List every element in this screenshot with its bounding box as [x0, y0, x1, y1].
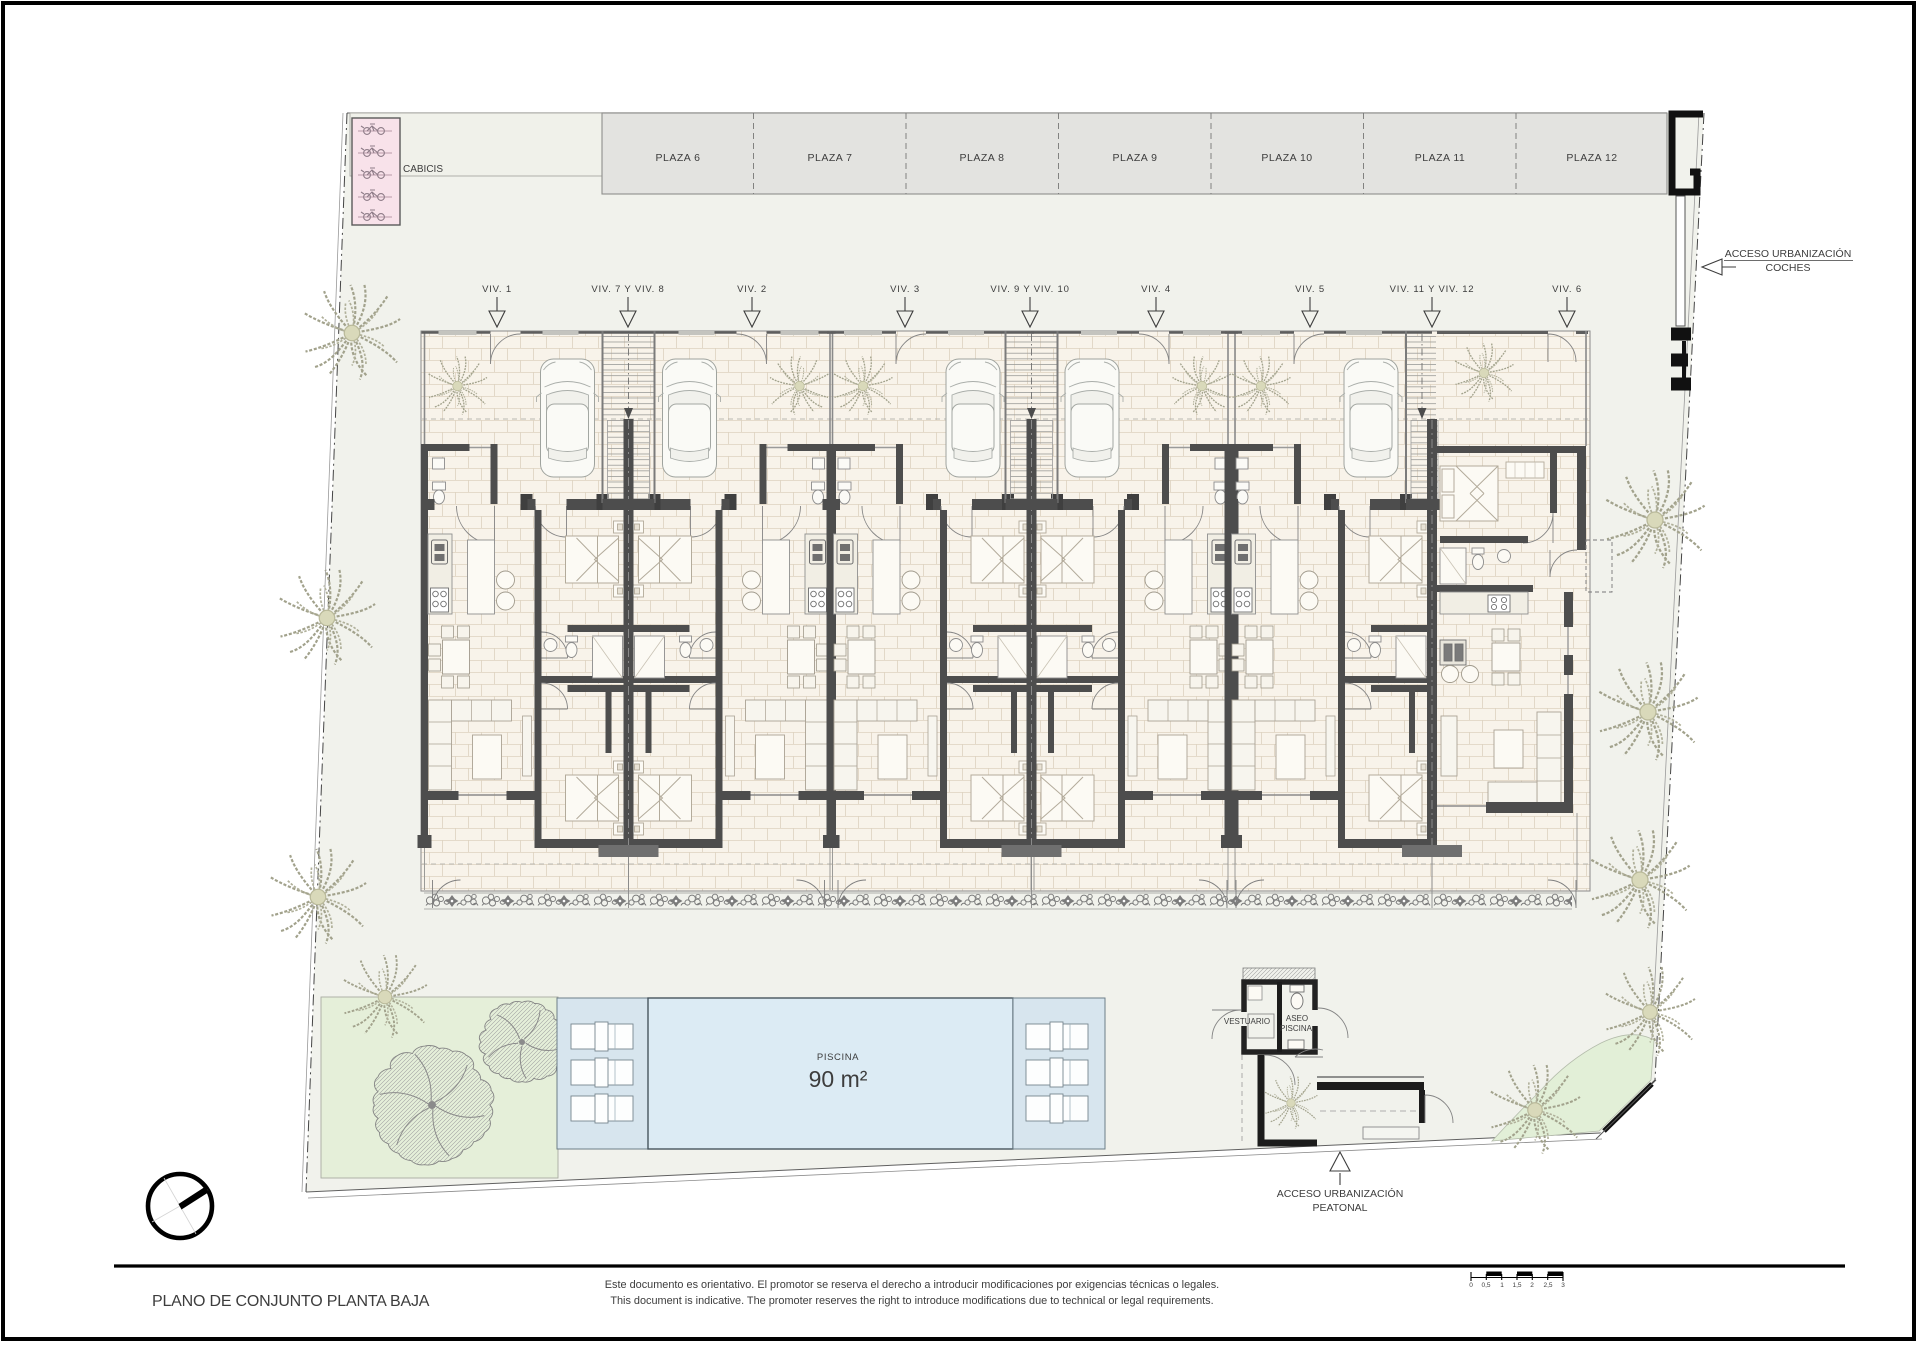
svg-text:2,5: 2,5 [1543, 1282, 1552, 1289]
svg-text:VIV. 5: VIV. 5 [1295, 284, 1325, 295]
svg-text:PEATONAL: PEATONAL [1312, 1202, 1367, 1214]
svg-text:0,5: 0,5 [1481, 1282, 1490, 1289]
svg-text:VIV. 1: VIV. 1 [482, 284, 512, 295]
svg-text:PLAZA 8: PLAZA 8 [960, 152, 1005, 164]
svg-text:VIV. 4: VIV. 4 [1141, 284, 1171, 295]
svg-text:90 m²: 90 m² [809, 1066, 868, 1092]
svg-text:2: 2 [1530, 1282, 1534, 1289]
svg-text:ACCESO URBANIZACIÓN: ACCESO URBANIZACIÓN [1725, 247, 1852, 260]
svg-text:Este documento es orientativo.: Este documento es orientativo. El promot… [605, 1279, 1219, 1291]
svg-text:VIV. 3: VIV. 3 [890, 284, 920, 295]
svg-text:PLAZA 11: PLAZA 11 [1415, 152, 1466, 164]
svg-text:PLAZA 6: PLAZA 6 [656, 152, 701, 164]
svg-text:This document is indicative. T: This document is indicative. The promote… [610, 1295, 1213, 1307]
svg-text:VIV. 6: VIV. 6 [1552, 284, 1582, 295]
svg-text:PISCINA: PISCINA [817, 1052, 859, 1063]
svg-text:VIV. 11 Y VIV. 12: VIV. 11 Y VIV. 12 [1390, 284, 1475, 295]
svg-text:PLAZA 9: PLAZA 9 [1113, 152, 1158, 164]
svg-text:1: 1 [1500, 1282, 1504, 1289]
svg-text:PLAZA 7: PLAZA 7 [808, 152, 853, 164]
svg-text:COCHES: COCHES [1766, 262, 1811, 274]
svg-text:VIV. 7 Y VIV. 8: VIV. 7 Y VIV. 8 [591, 284, 664, 295]
svg-text:PLANO DE CONJUNTO PLANTA BAJA: PLANO DE CONJUNTO PLANTA BAJA [152, 1293, 430, 1310]
svg-text:ASEO: ASEO [1286, 1014, 1308, 1023]
svg-text:ACCESO URBANIZACIÓN: ACCESO URBANIZACIÓN [1277, 1187, 1404, 1200]
svg-text:PISCINA: PISCINA [1280, 1024, 1313, 1033]
svg-text:PLAZA 12: PLAZA 12 [1566, 152, 1617, 164]
svg-text:0: 0 [1469, 1282, 1473, 1289]
svg-text:VESTUARIO: VESTUARIO [1224, 1017, 1270, 1026]
svg-text:PLAZA 10: PLAZA 10 [1261, 152, 1312, 164]
svg-text:VIV. 2: VIV. 2 [737, 284, 767, 295]
svg-text:VIV. 9 Y VIV. 10: VIV. 9 Y VIV. 10 [990, 284, 1069, 295]
svg-text:3: 3 [1561, 1282, 1565, 1289]
svg-text:1,5: 1,5 [1512, 1282, 1521, 1289]
svg-text:CABICIS: CABICIS [403, 164, 443, 175]
